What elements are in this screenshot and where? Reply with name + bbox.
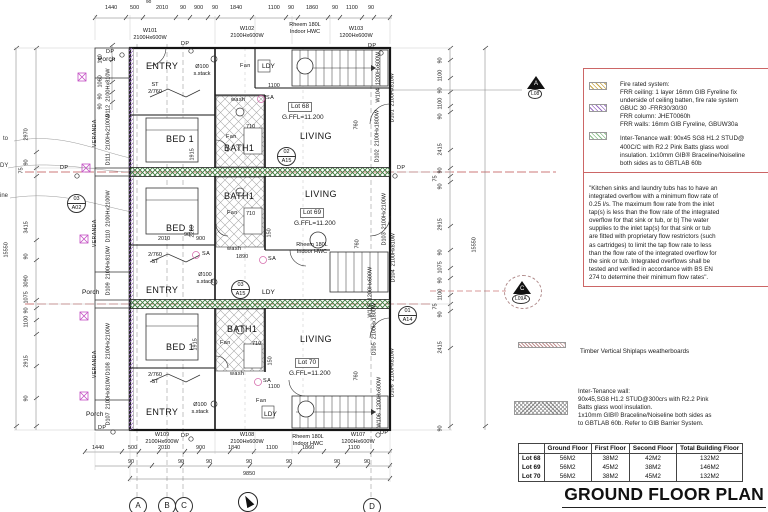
dim: 1100 xyxy=(25,316,31,328)
col-header: Ground Floor xyxy=(544,444,591,454)
fan-label: Fan xyxy=(256,399,267,405)
dim: 90 xyxy=(439,311,445,317)
dim-total-height: 15550 xyxy=(5,242,11,257)
stack-label: Ø100s.stack xyxy=(178,402,222,416)
stack-label: Ø100s.stack xyxy=(183,272,227,286)
dim: 1075 xyxy=(439,261,445,273)
dim: 1100 xyxy=(346,6,358,12)
dim: 90 xyxy=(25,395,31,401)
door-tag-d103: D1032100Hx2100W xyxy=(383,190,389,246)
room-label-bath1: BATH1 xyxy=(227,325,257,334)
dim: 90 xyxy=(246,460,252,466)
window-tag-w107: W1071200Hx600W xyxy=(328,432,388,446)
dim: 90 xyxy=(439,167,445,173)
room-label-ldy: LDY xyxy=(262,64,275,71)
dim: 900 xyxy=(196,237,205,243)
dim: 150 xyxy=(269,356,275,365)
room-label-ldy: LDY xyxy=(262,290,275,297)
dim: 90 xyxy=(286,460,292,466)
fan-label: Fan xyxy=(226,135,237,141)
dim: 1100 xyxy=(268,6,280,12)
window-tag-w104: W1041200Hx600W xyxy=(377,49,383,103)
weatherboard-swatch xyxy=(518,342,566,348)
closet-tag: ST2/760 xyxy=(133,82,177,96)
dim: 90 xyxy=(332,6,338,12)
dim: 75 xyxy=(20,167,26,173)
dim: 90 xyxy=(212,6,218,12)
table-row: Lot 6856M2 38M242M2 132M2 xyxy=(519,454,743,464)
dim: 710 xyxy=(246,212,255,218)
dim: 1915 xyxy=(191,148,197,160)
door-tag-d107: D1072100Hx810W xyxy=(107,373,113,425)
dim: 1440 xyxy=(105,6,117,12)
window-tag-w109: W1092100Hx600W xyxy=(132,432,192,446)
dim: 75 xyxy=(434,303,440,309)
wash-label: wash xyxy=(231,98,245,104)
window-tag-w102: W1022100Hx600W xyxy=(217,26,277,40)
dim: 2970 xyxy=(25,128,31,140)
dim: 900 xyxy=(194,6,203,12)
dp-label: DP xyxy=(106,50,114,56)
dim: 90 xyxy=(178,460,184,466)
dim: 710 xyxy=(246,125,255,131)
room-label-bed1: BED 1 xyxy=(166,343,194,352)
window-tag-w103: W1031200Hx600W xyxy=(326,26,386,40)
sa-label: SA xyxy=(268,257,276,263)
door-tag-d108: D1082100Hx2100W xyxy=(107,320,113,376)
table-header-row: Ground Floor First Floor Second Floor To… xyxy=(519,444,743,454)
dim: 2915 xyxy=(439,218,445,230)
dim: 75 xyxy=(434,175,440,181)
intertenancy-wall-swatch xyxy=(514,401,568,415)
lot-id: Lot 69 xyxy=(300,208,324,218)
dim: 1440 xyxy=(92,446,104,452)
sa-label: SA xyxy=(263,379,271,385)
dim: 90 xyxy=(439,183,445,189)
door-tag-d112: D1122100Hx810W xyxy=(107,65,113,117)
room-label-porch: Porch xyxy=(82,290,99,297)
window-tag-w101: W1012100Hx600W xyxy=(120,28,180,42)
dim: 2915 xyxy=(25,355,31,367)
intertenancy-wall-note: Inter-Tenance wall: 90x45,SG8 H1.2 STUD@… xyxy=(578,380,766,428)
room-label-veranda: VERANDA xyxy=(93,119,98,147)
room-label-bed1: BED 1 xyxy=(166,135,194,144)
dim: 1100 xyxy=(268,385,280,391)
dim: 1890 xyxy=(236,255,248,261)
door-tag-d106: D1062100Hx810W xyxy=(391,345,397,397)
north-arrow-icon xyxy=(238,492,258,512)
lot-id: Lot 68 xyxy=(288,102,312,112)
dim: 90 xyxy=(439,87,445,93)
wash-label: wash xyxy=(230,372,244,378)
hwc-label: Rheem 180LIndoor HWC xyxy=(282,242,342,256)
room-label-living: LIVING xyxy=(300,132,332,141)
dim: 90 xyxy=(439,425,445,431)
dim: 1075 xyxy=(25,291,31,303)
dim: 1100 xyxy=(439,70,445,82)
grid-bubble-b: B xyxy=(158,497,176,512)
detail-marker-a15: 03A15 xyxy=(231,280,250,299)
fire-rating-legend: Fire rated system: FRR ceiling: 1 layer … xyxy=(583,68,768,181)
dim: 2010 xyxy=(158,237,170,243)
table-row: Lot 7056M2 38M245M2 132M2 xyxy=(519,472,743,482)
room-label-entry: ENTRY xyxy=(146,62,178,71)
dim: 1100 xyxy=(266,446,278,452)
leader-fragment: ine xyxy=(0,193,8,199)
window-tag-w108: W1082100Hx600W xyxy=(217,432,277,446)
dim: 1915 xyxy=(194,338,200,350)
col-header xyxy=(519,444,545,454)
dim: 710 xyxy=(252,342,261,348)
room-label-porch: Porch xyxy=(98,57,115,64)
dim: 90 xyxy=(99,93,105,99)
dim: 760 xyxy=(355,371,361,380)
dp-label: DP xyxy=(397,166,405,172)
dim: 90 xyxy=(439,249,445,255)
wash-label: wash xyxy=(227,247,241,253)
dim: 90 xyxy=(25,307,31,313)
room-label-bath1: BATH1 xyxy=(224,192,254,201)
dim: 90 xyxy=(334,460,340,466)
dim: 90 xyxy=(180,6,186,12)
dim: 90 xyxy=(206,460,212,466)
col-header: Second Floor xyxy=(629,444,676,454)
room-label-bath1: BATH1 xyxy=(224,144,254,153)
lot-ffl: G.FFL=11.200 xyxy=(294,220,336,227)
room-label-living: LIVING xyxy=(300,335,332,344)
dim: 90 xyxy=(439,113,445,119)
door-tag-d109: D1092100Hx810W xyxy=(107,243,113,295)
dim: 500 xyxy=(130,6,139,12)
col-header: First Floor xyxy=(591,444,629,454)
dim: 1840 xyxy=(228,446,240,452)
door-tag-d101: D1012100Hx810W xyxy=(391,70,397,122)
door-tag-d104: D1042100Hx810W xyxy=(392,230,398,282)
frr-wall-hatch-swatch xyxy=(589,104,607,112)
fire-rating-text: Fire rated system: FRR ceiling: 1 layer … xyxy=(620,81,738,128)
dim: 1100 xyxy=(348,446,360,452)
dim: 2010 xyxy=(156,6,168,12)
dp-label: DP xyxy=(60,166,68,172)
dim: 1060 xyxy=(99,75,105,87)
dim: 760 xyxy=(355,120,361,129)
dim: 90 xyxy=(25,159,31,165)
door-tag-d110: D1102100Hx2100W xyxy=(107,187,113,242)
dim: 1100 xyxy=(439,289,445,301)
dim: 90 xyxy=(439,277,445,283)
sa-label: SA xyxy=(266,96,274,102)
dim: 3090 xyxy=(25,275,31,287)
room-label-bed1: BED 1 xyxy=(166,224,194,233)
grid-bubble-a: A xyxy=(129,497,147,512)
room-label-ldy: LDY xyxy=(264,412,277,419)
dp-label: DP xyxy=(181,42,189,48)
dim: 150 xyxy=(268,228,274,237)
frr-ceiling-hatch-swatch xyxy=(589,82,607,90)
dim: 2010 xyxy=(158,446,170,452)
dim: 900 xyxy=(196,446,205,452)
leader-fragment: DY xyxy=(0,163,8,169)
kitchen-overflow-note: "Kitchen sinks and laundry tubs has to h… xyxy=(583,172,768,287)
leader-fragment: to xyxy=(3,136,8,142)
dim: 3415 xyxy=(25,221,31,233)
sa-label: SA xyxy=(202,252,210,258)
fan-label: Fan xyxy=(220,341,231,347)
dim: 90 xyxy=(99,103,105,109)
room-label-entry: ENTRY xyxy=(146,286,178,295)
closet-tag: 2/760ST xyxy=(133,252,177,266)
door-tag-d105: D1052100Hx1800W xyxy=(373,300,379,356)
detail-marker-a02: 03A02 xyxy=(67,194,86,213)
grid-bubble-d: D xyxy=(363,498,381,512)
intertenancy-hatch-swatch xyxy=(589,132,607,140)
door-tag-d102: D1022100Hx1800W xyxy=(376,107,382,163)
dim: 90 xyxy=(128,460,134,466)
room-label-veranda: VERANDA xyxy=(93,350,98,378)
dim: 760 xyxy=(356,239,362,248)
dim: 90 xyxy=(368,6,374,12)
grid-bubble-c: C xyxy=(175,497,193,512)
col-header: Total Building Floor xyxy=(677,444,743,454)
floor-plan-sheet: 1440 500 90 2010 90 900 90 1840 1100 90 … xyxy=(0,0,768,512)
dim: 1860 xyxy=(306,6,318,12)
dim: 2415 xyxy=(439,143,445,155)
fan-label: Fan xyxy=(240,64,251,70)
fan-label: Fan xyxy=(227,211,238,217)
dim: 90 xyxy=(439,57,445,63)
intertenancy-legend-text: Inter-Tenance wall: 90x45 SG8 H1.2 STUD@… xyxy=(620,135,768,167)
stack-label: Ø100s.stack xyxy=(180,64,224,78)
detail-marker-a14: 01A14 xyxy=(398,306,417,325)
dim-total-height: 15550 xyxy=(473,237,479,252)
room-label-living: LIVING xyxy=(305,190,337,199)
detail-marker-a15: 02A15 xyxy=(277,147,296,166)
dim: 1840 xyxy=(230,6,242,12)
weatherboard-note: Timber Vertical Shiplaps weatherboards xyxy=(580,340,760,356)
dim: 90 xyxy=(184,233,190,239)
dim: 90 xyxy=(146,1,151,6)
room-label-entry: ENTRY xyxy=(146,408,178,417)
table-row: Lot 6956M2 45M238M2 146M2 xyxy=(519,463,743,472)
floor-area-table: Ground Floor First Floor Second Floor To… xyxy=(518,443,743,482)
closet-tag: 2/760ST xyxy=(133,372,177,386)
dim: 90 xyxy=(288,6,294,12)
lot-ffl: G.FFL=11.200 xyxy=(282,114,324,121)
dim-total-width: 9850 xyxy=(243,472,255,478)
room-label-veranda: VERANDA xyxy=(93,219,98,247)
dim: 2415 xyxy=(439,341,445,353)
room-label-porch: Porch xyxy=(86,412,103,419)
dp-label: DP xyxy=(368,44,376,50)
dim: 1100 xyxy=(268,84,280,90)
lot-ffl: G.FFL=11.200 xyxy=(289,370,331,377)
dim: 90 xyxy=(25,253,31,259)
dim: 90 xyxy=(364,460,370,466)
drawing-title: GROUND FLOOR PLAN xyxy=(562,484,766,508)
dp-label: DP xyxy=(98,426,106,432)
door-tag-d111: D1112100Hx2100W xyxy=(107,111,113,166)
lot-id: Lot 70 xyxy=(295,358,319,368)
dim: 1100 xyxy=(439,98,445,110)
dim: 500 xyxy=(128,446,137,452)
window-tag-w106: W1061200Hx600W xyxy=(378,374,384,428)
